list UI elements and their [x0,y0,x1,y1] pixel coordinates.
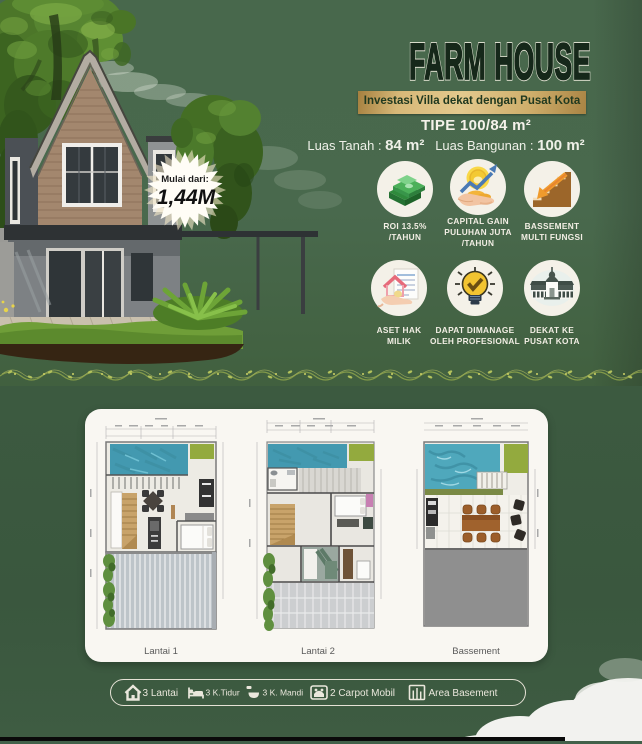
svg-text:PULUHAN JUTA: PULUHAN JUTA [444,227,512,237]
svg-text:/TAHUN: /TAHUN [462,238,495,248]
svg-text:ROI 13.5%: ROI 13.5% [383,221,427,231]
svg-text:MILIK: MILIK [387,336,411,346]
svg-text:OLEH PROFESIONAL: OLEH PROFESIONAL [430,336,520,346]
svg-text:Lantai 1: Lantai 1 [144,646,178,657]
svg-text:ASET HAK: ASET HAK [377,325,422,335]
svg-text:1,44M: 1,44M [157,186,216,209]
svg-text:MULTI FUNGSI: MULTI FUNGSI [521,232,583,242]
svg-text:CAPITAL GAIN: CAPITAL GAIN [447,216,509,226]
svg-text:3 K. Mandi: 3 K. Mandi [263,688,304,698]
svg-text:PUSAT KOTA: PUSAT KOTA [524,336,580,346]
svg-text:3 Lantai: 3 Lantai [143,688,179,699]
svg-text:3 K.Tidur: 3 K.Tidur [206,688,240,698]
svg-text:Mulai dari:: Mulai dari: [161,174,209,185]
svg-text:DAPAT DIMANAGE: DAPAT DIMANAGE [435,325,514,335]
svg-text:BASSEMENT: BASSEMENT [525,221,580,231]
svg-text:Lantai 2: Lantai 2 [301,646,335,657]
svg-text:FARM HOUSE: FARM HOUSE [409,33,591,90]
svg-text:/TAHUN: /TAHUN [389,232,422,242]
svg-text:DEKAT KE: DEKAT KE [530,325,574,335]
